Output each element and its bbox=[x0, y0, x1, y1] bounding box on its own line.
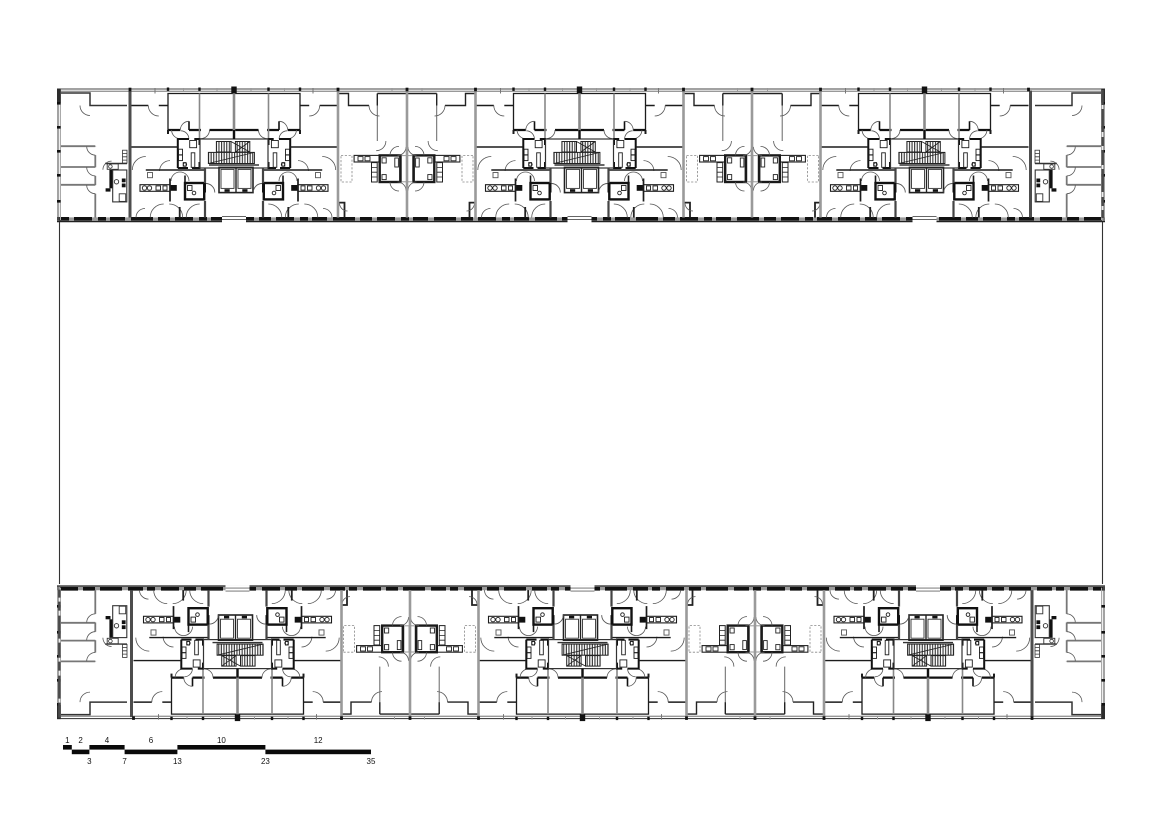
svg-text:23: 23 bbox=[261, 757, 270, 766]
svg-text:4: 4 bbox=[105, 736, 110, 745]
svg-text:10: 10 bbox=[217, 736, 226, 745]
svg-text:1: 1 bbox=[65, 736, 70, 745]
svg-text:3: 3 bbox=[87, 757, 92, 766]
svg-text:35: 35 bbox=[367, 757, 376, 766]
svg-text:13: 13 bbox=[173, 757, 182, 766]
svg-text:12: 12 bbox=[314, 736, 323, 745]
svg-text:2: 2 bbox=[78, 736, 83, 745]
svg-text:7: 7 bbox=[122, 757, 127, 766]
svg-text:6: 6 bbox=[149, 736, 154, 745]
